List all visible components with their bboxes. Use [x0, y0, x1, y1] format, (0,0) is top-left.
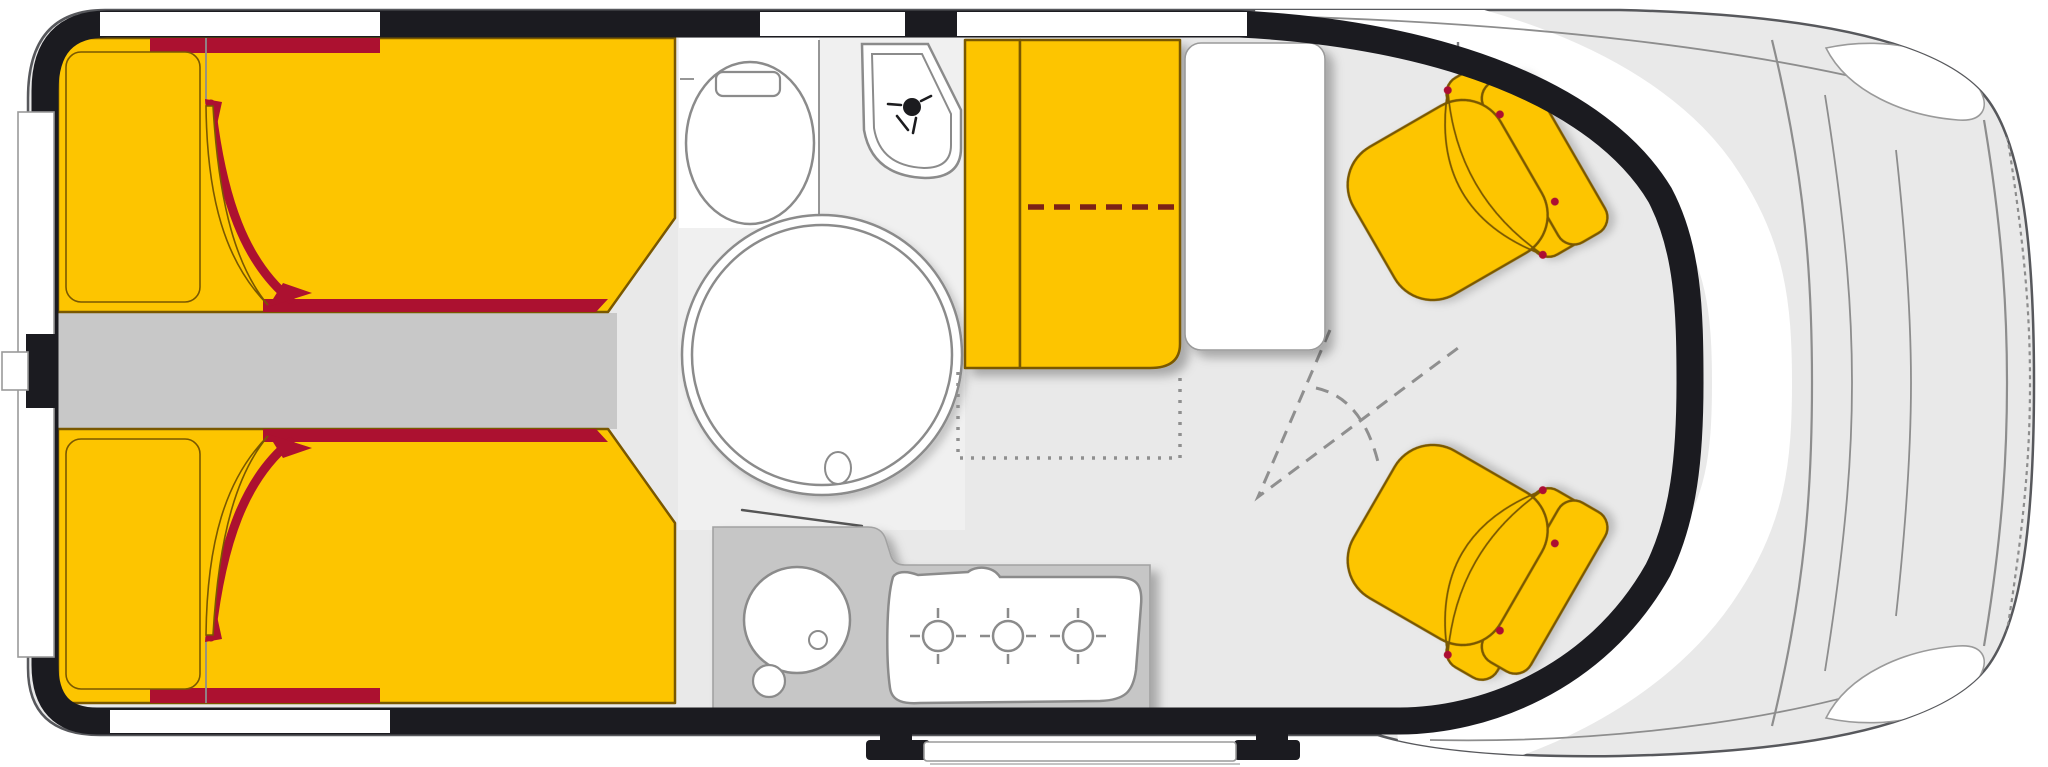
window-bottom-1 [110, 710, 390, 733]
sink-faucet-icon [809, 631, 827, 649]
rear-bed-top [58, 38, 675, 312]
dinette-bench [965, 40, 1180, 368]
window-top-2 [760, 12, 905, 36]
window-top-3 [957, 12, 1247, 36]
rear-doors [2, 112, 56, 657]
kitchen-sink [744, 567, 850, 673]
shower-tray-outer [682, 215, 962, 495]
campervan-floorplan: Campervan floor plan, top view: rear twi… [0, 0, 2048, 767]
step-cap-right [1234, 740, 1300, 760]
rear-door-handle [2, 352, 28, 390]
bench-seat [1020, 40, 1180, 368]
shower-drain [825, 452, 851, 484]
step-cap-left [866, 740, 930, 760]
sink-drain-icon [753, 665, 785, 697]
entry-step [866, 733, 1300, 764]
window-top-1 [100, 12, 380, 36]
rear-bed-bottom [58, 429, 675, 703]
toilet-lid-hinge [716, 72, 780, 96]
bench-backrest [965, 40, 1020, 368]
dinette-table [1185, 43, 1325, 350]
rear-door-latch [26, 334, 56, 408]
shower-cabin [682, 215, 962, 495]
step-board [924, 742, 1236, 761]
center-aisle [58, 313, 617, 429]
floorplan-stage: Campervan floor plan, top view: rear twi… [0, 0, 2048, 767]
